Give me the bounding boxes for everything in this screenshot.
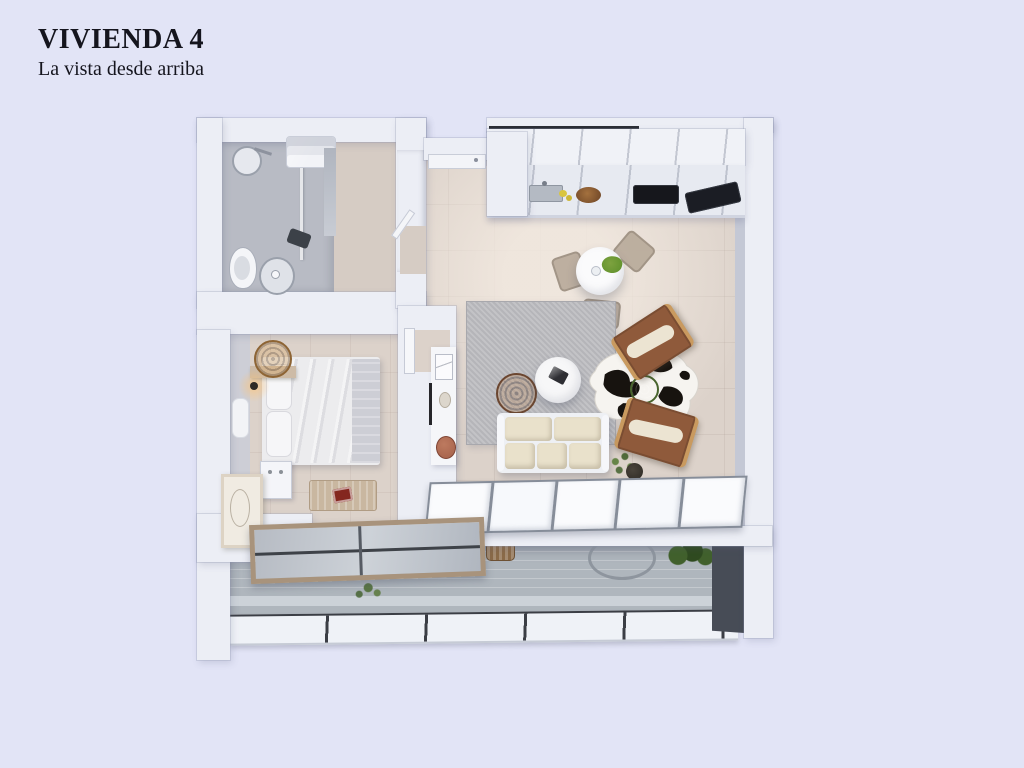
wall-bath-bed-divider <box>197 292 426 334</box>
sofa-seat-cushion <box>505 443 535 469</box>
terracotta-vase <box>436 436 456 459</box>
fruit-lemon-2 <box>566 195 572 201</box>
sheepskin-throw <box>627 418 684 444</box>
table-cup <box>591 266 601 276</box>
window-mullion-horizontal <box>255 545 480 556</box>
sofa-seat-cushion <box>569 443 601 469</box>
fruit-bowl <box>576 187 601 203</box>
console-figurine <box>439 392 451 408</box>
sofa-seat-cushion <box>537 443 567 469</box>
bed-blanket <box>352 359 380 463</box>
toilet-seat <box>234 256 250 280</box>
kitchen-faucet <box>542 181 547 186</box>
entry-door-handle <box>474 158 478 162</box>
washbasin-drain <box>271 270 280 279</box>
sliding-door-panel <box>553 480 618 529</box>
bedroom-door <box>404 328 415 374</box>
wall-bathroom-left <box>197 118 222 308</box>
kitchen-tall-unit <box>487 132 527 216</box>
dresser-knob <box>279 470 283 474</box>
floor-plan-page: VIVIENDA 4 La vista desde arriba <box>0 0 1024 768</box>
sheepskin-throw <box>624 322 677 360</box>
frame-sketch <box>230 489 250 527</box>
wall-right-outer <box>744 118 773 638</box>
balcony-floor-edge <box>228 596 744 606</box>
hanging-robe <box>232 398 249 438</box>
kitchen-cooktop <box>633 185 679 204</box>
bathroom-mirror <box>324 148 336 236</box>
sliding-door-panel <box>680 478 745 527</box>
sofa-back-cushion <box>554 417 601 441</box>
sofa-armrest-left <box>497 415 504 471</box>
sliding-door-panel <box>617 479 682 528</box>
bed-pillow <box>266 411 292 457</box>
sliding-door-panel <box>490 482 555 531</box>
dresser <box>260 461 292 499</box>
page-title: VIVIENDA 4 <box>38 24 204 56</box>
sofa-back-cushion <box>505 417 552 441</box>
kitchen-sink <box>529 185 563 202</box>
wall-lamp <box>250 382 258 390</box>
dresser-knob <box>268 470 272 474</box>
rattan-pouf <box>496 373 537 414</box>
console-art-frame <box>435 354 453 380</box>
bedroom-window <box>249 517 486 584</box>
page-subtitle: La vista desde arriba <box>38 58 204 81</box>
balcony-dark-wall <box>712 543 748 634</box>
balcony-railing <box>230 609 738 645</box>
sofa <box>497 413 609 473</box>
console-handle <box>429 383 432 425</box>
bathroom-doorway-floor <box>400 226 426 274</box>
